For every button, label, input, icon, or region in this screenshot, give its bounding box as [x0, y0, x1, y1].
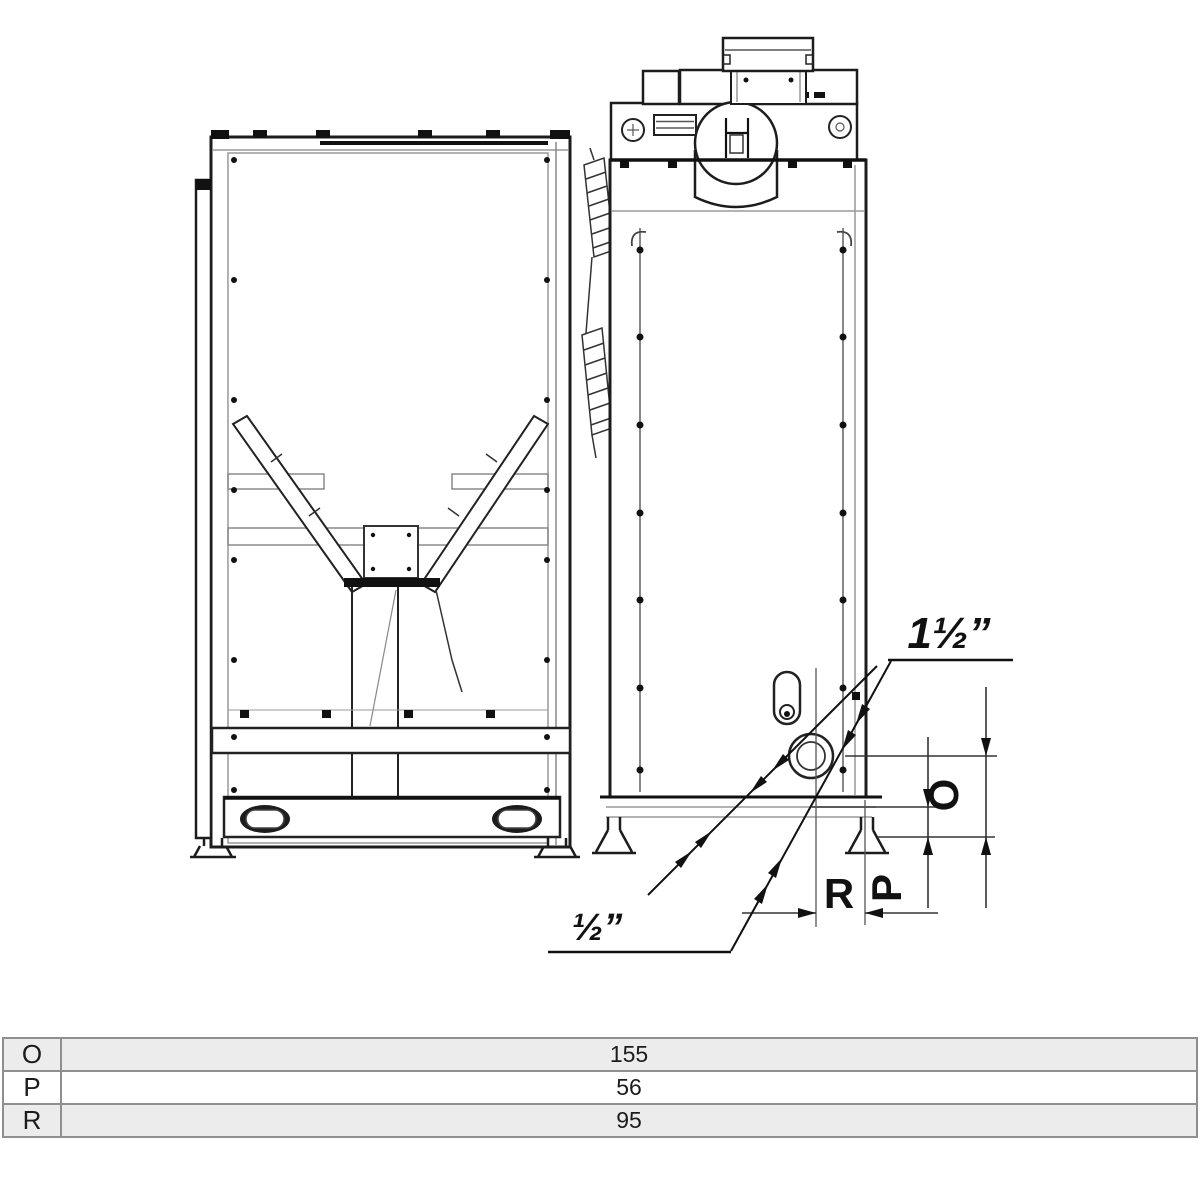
dim-p-line [923, 737, 933, 908]
dimension-table: O 155 P 56 R 95 [2, 1037, 1198, 1138]
console-knob-right [829, 116, 851, 138]
pipe-size-label-top: 1½” [907, 609, 990, 658]
water-connection-flange [789, 734, 833, 778]
boiler-body [592, 160, 889, 853]
dim-label-r: R [824, 870, 854, 917]
dim-o-line [981, 687, 991, 908]
console-vent [654, 115, 696, 135]
chimney-flue [723, 38, 813, 104]
console-knob-left [622, 119, 644, 141]
dim-key-cell: P [4, 1072, 62, 1103]
boiler-technical-drawing: 1½” ½” O P R [0, 0, 1200, 1030]
pipe-size-label-bottom: ½” [572, 907, 623, 949]
drain-valve-fitting [774, 672, 800, 724]
dim-key-cell: R [4, 1105, 62, 1136]
dim-key-cell: O [4, 1039, 62, 1070]
burner-cylinder [695, 102, 777, 207]
dim-label-o: O [920, 779, 967, 812]
dim-value-cell: 56 [62, 1072, 1196, 1103]
drawing-page: 1½” ½” O P R O 155 P 56 R 95 [0, 0, 1200, 1200]
dim-value-cell: 95 [62, 1105, 1196, 1136]
boiler-foot-rear [845, 817, 889, 853]
dim-value-cell: 155 [62, 1039, 1196, 1070]
dim-label-p: P [863, 874, 910, 902]
table-row: P 56 [4, 1070, 1196, 1103]
boiler-foot-front [592, 817, 636, 853]
pellet-hopper [190, 130, 580, 857]
table-row: R 95 [4, 1103, 1196, 1136]
hopper-access-plate [364, 526, 418, 578]
table-row: O 155 [4, 1039, 1196, 1070]
